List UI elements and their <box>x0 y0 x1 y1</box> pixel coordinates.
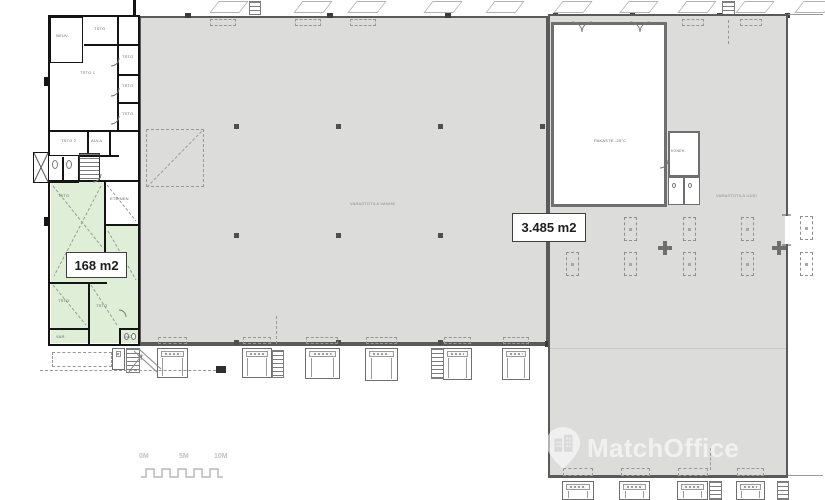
loading-dock <box>502 348 530 380</box>
window <box>556 445 558 447</box>
floor-joint-line <box>550 348 786 349</box>
matchoffice-watermark: MatchOffice <box>544 426 739 470</box>
dock-door <box>681 484 704 490</box>
dock-apron <box>503 337 529 344</box>
window <box>566 445 568 447</box>
room-label: TSTO <box>122 84 133 88</box>
dock-rail <box>448 358 449 378</box>
wc-room <box>684 177 700 205</box>
parking-spot <box>624 252 637 276</box>
window <box>569 445 571 447</box>
room-label: WC <box>125 335 132 339</box>
wall-segment <box>104 182 106 226</box>
column <box>438 124 443 129</box>
column <box>234 340 239 345</box>
dock-apron <box>682 19 704 26</box>
guide-line <box>728 20 729 44</box>
pin-shape <box>546 427 580 469</box>
parking-spot <box>800 252 813 276</box>
canopy-mark <box>735 1 774 13</box>
exterior-stair <box>722 1 735 15</box>
area-label-3485: 3.485 m2 <box>512 213 586 242</box>
wall-column <box>185 13 191 18</box>
dock-rail <box>625 491 626 498</box>
floor-plan: NEUV. TSTO TSTO TSTO TSTO TSTO 1 TSTO 2 … <box>0 0 825 500</box>
canopy-mark <box>209 1 248 13</box>
window <box>556 441 558 443</box>
wall-segment <box>88 284 90 344</box>
dock-door <box>740 484 761 490</box>
wc-fixture <box>66 160 72 169</box>
loading-dock <box>443 348 472 380</box>
dock-door <box>506 351 526 357</box>
wc-room <box>668 177 684 205</box>
window <box>569 441 571 443</box>
hall-label: VARASTOTILA VANHA <box>350 202 395 206</box>
room-label: TSTO <box>96 304 107 308</box>
dock-rail <box>266 358 267 376</box>
dock-door <box>566 484 590 490</box>
wc-fixture <box>52 160 58 169</box>
wc-fixture <box>672 183 676 188</box>
scale-label-10m: 10M <box>214 453 228 460</box>
exterior-stair <box>249 1 261 15</box>
canopy-mark <box>347 1 386 13</box>
wall-segment <box>788 475 823 476</box>
gate-marker <box>216 366 226 373</box>
wall-column <box>327 13 333 18</box>
scale-label-0m: 0M <box>139 453 149 460</box>
room-label: VAR. <box>56 335 66 339</box>
parking-spot <box>683 252 696 276</box>
canopy-mark <box>619 1 658 13</box>
column <box>438 340 443 345</box>
parking-spot <box>624 217 637 241</box>
wall-segment <box>48 180 140 182</box>
area-label-168: 168 m2 <box>66 252 127 278</box>
canopy-mark <box>423 1 462 13</box>
wall-segment <box>50 328 90 330</box>
dock-apron <box>366 337 397 344</box>
dock-stair <box>272 350 284 378</box>
column <box>540 124 545 129</box>
wall-segment <box>117 102 140 104</box>
hall-label: VARASTOTILA UUSI <box>716 194 757 198</box>
loading-dock <box>242 348 272 378</box>
dock-apron <box>210 19 236 26</box>
building-block <box>554 439 562 452</box>
dock-stair <box>431 348 444 379</box>
dock-door <box>447 351 468 357</box>
dock-door <box>623 484 646 490</box>
loading-dock <box>677 481 708 500</box>
door-opening <box>785 216 790 244</box>
dock-apron <box>740 19 762 26</box>
dock-rail <box>683 491 684 498</box>
parking-spot <box>566 252 579 276</box>
column <box>438 233 443 238</box>
parking-spot <box>683 217 696 241</box>
loading-dock <box>736 481 765 500</box>
loading-dock <box>305 348 340 379</box>
room-label: TSTO <box>122 55 133 59</box>
wall-column <box>445 13 451 18</box>
machine-room <box>668 131 700 177</box>
window <box>569 438 571 440</box>
dock-rail <box>701 491 702 498</box>
dock-apron <box>444 337 471 344</box>
dock-door <box>116 351 121 357</box>
dock-rail <box>507 358 508 378</box>
canopy-mark <box>553 1 592 13</box>
dock-apron <box>737 468 764 476</box>
wall-segment <box>62 157 64 181</box>
room-label: TSTO 1 <box>80 71 95 75</box>
cold-room <box>551 22 667 207</box>
dock-apron <box>243 337 271 344</box>
room-label: TSTO <box>58 299 69 303</box>
scale-label-5m: 5M <box>179 453 189 460</box>
parking-spot <box>741 217 754 241</box>
dock-door <box>246 351 268 357</box>
dock-door <box>369 351 394 357</box>
wall-segment <box>50 130 139 132</box>
dock-rail <box>182 358 183 376</box>
room-label: KONEH. <box>671 150 686 154</box>
column <box>234 233 239 238</box>
property-line <box>40 370 216 371</box>
loading-dock <box>365 348 398 381</box>
wall-segment <box>133 0 136 15</box>
wall-segment <box>50 282 107 284</box>
dock-stair <box>709 481 722 500</box>
room-label: PAKASTE -25°C <box>594 139 626 143</box>
dock-door <box>161 351 184 357</box>
wall-segment <box>84 44 140 46</box>
ramp-area <box>146 129 204 187</box>
dock-rail <box>759 491 760 498</box>
guide-line <box>276 316 277 344</box>
wall-segment <box>788 14 823 15</box>
wall-segment <box>109 132 111 156</box>
column <box>336 124 341 129</box>
dock-door <box>309 351 336 357</box>
parking-spot <box>800 216 813 240</box>
column <box>234 124 239 129</box>
dock-rail <box>587 491 588 498</box>
room-label: TSTO 2 <box>61 139 76 143</box>
dock-rail <box>311 358 312 377</box>
wall-segment <box>104 224 139 226</box>
dock-apron <box>306 337 338 344</box>
dock-apron <box>350 19 376 26</box>
watermark-brand: MatchOffice <box>587 435 739 461</box>
loading-dock <box>562 481 594 500</box>
window <box>559 445 561 447</box>
entrance-vestibule <box>33 152 49 183</box>
room-label: TSTO <box>94 27 105 31</box>
window <box>566 441 568 443</box>
dock-stair <box>777 481 789 500</box>
canopy-mark <box>293 1 332 13</box>
scale-bar-line <box>141 469 223 477</box>
wall-segment <box>119 328 139 330</box>
dock-rail <box>568 491 569 498</box>
loading-dock <box>619 481 650 500</box>
dock-rail <box>643 491 644 498</box>
dock-rail <box>333 358 334 377</box>
loading-dock <box>157 348 188 378</box>
window <box>566 438 568 440</box>
dock-rail <box>247 358 248 376</box>
room-label: ETEINEN <box>110 197 129 201</box>
wall-column <box>44 217 49 226</box>
dock-rail <box>466 358 467 378</box>
room-label: TSTO <box>58 194 69 198</box>
wc-fixture <box>688 183 692 188</box>
staircase <box>79 153 100 181</box>
dock-rail <box>371 358 372 379</box>
room-label: NEUV. <box>56 34 69 38</box>
dock-rail <box>162 358 163 376</box>
plus-bar <box>777 241 781 255</box>
loading-dock <box>112 348 125 370</box>
wall-segment <box>117 74 140 76</box>
room-label: TSTO <box>122 112 133 116</box>
highlighted-area-168 <box>106 226 138 343</box>
dock-rail <box>741 491 742 498</box>
building-block <box>564 435 573 452</box>
exterior-platform <box>52 352 112 367</box>
dock-rail <box>391 358 392 379</box>
room-neuv <box>50 17 83 63</box>
parking-spot <box>741 252 754 276</box>
dock-apron <box>295 19 321 26</box>
map-pin-building-icon <box>544 426 582 470</box>
wall-column <box>44 77 49 86</box>
canopy-mark <box>677 1 716 13</box>
column <box>336 233 341 238</box>
wall-segment <box>119 330 121 344</box>
dock-rail <box>524 358 525 378</box>
dock-apron <box>158 337 187 344</box>
canopy-mark <box>794 1 825 13</box>
plus-bar <box>663 241 667 255</box>
canopy-mark <box>485 1 524 13</box>
window <box>559 441 561 443</box>
room-label: AULA <box>91 139 102 143</box>
